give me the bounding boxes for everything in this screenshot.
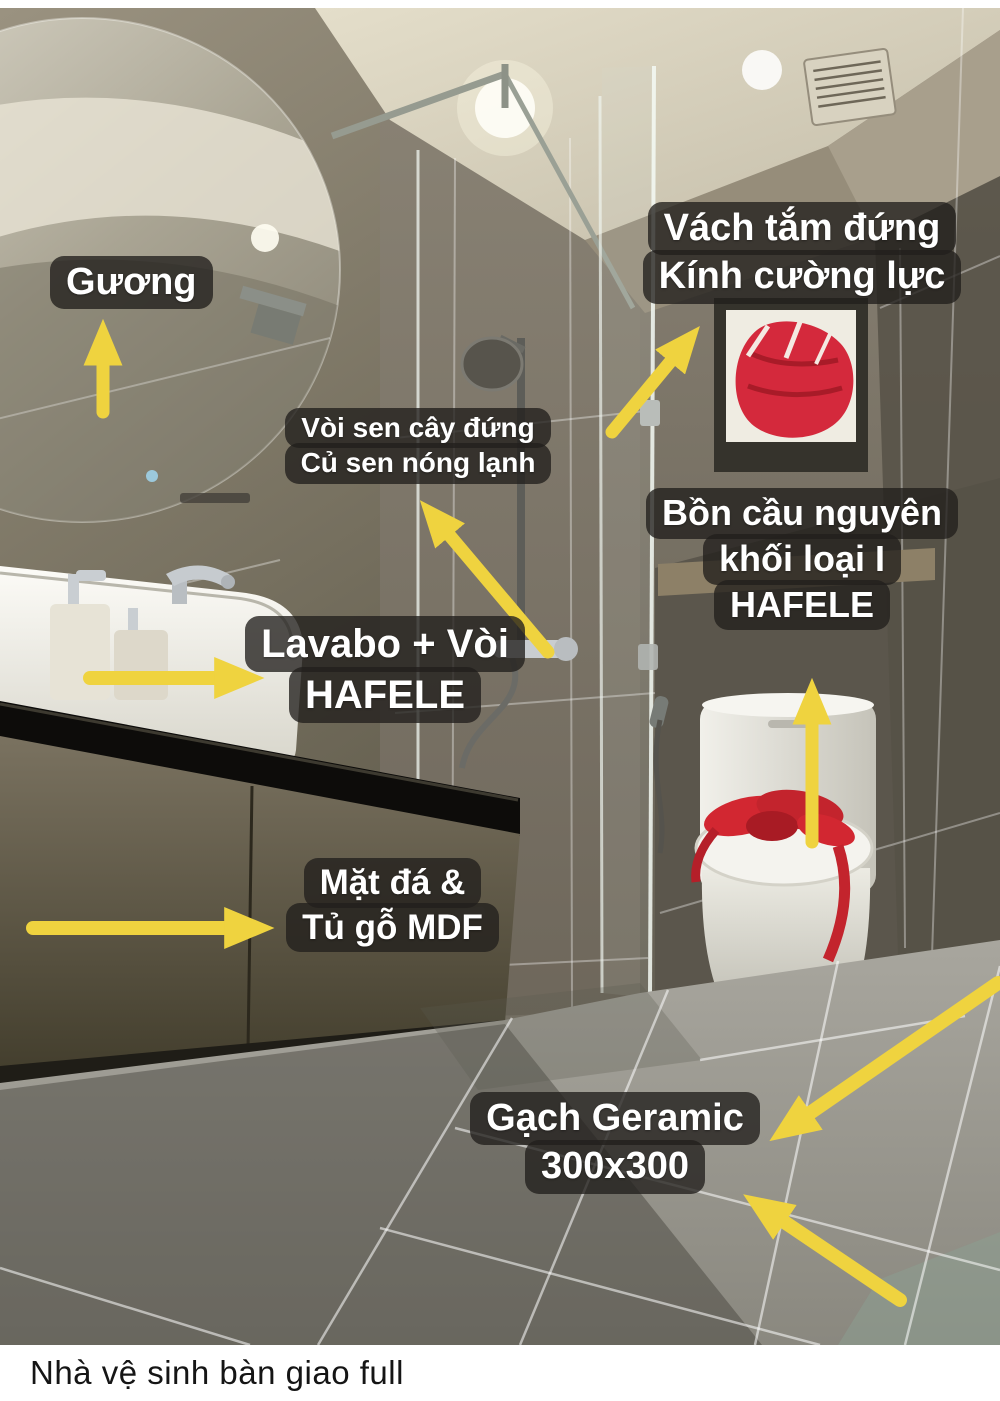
caption-text: Nhà vệ sinh bàn giao full bbox=[30, 1354, 404, 1392]
label-shower-glass: Vách tắm đứng Kính cường lực bbox=[652, 202, 952, 304]
label-shower-set: Vòi sen cây đứng Củ sen nóng lạnh bbox=[292, 408, 544, 484]
label-toilet-line-2: khối loại I bbox=[703, 534, 901, 585]
label-vanity-line-1: Mặt đá & bbox=[304, 858, 482, 908]
label-floor-tile: Gạch Geramic 300x300 bbox=[475, 1092, 755, 1194]
label-toilet-line-3: HAFELE bbox=[714, 580, 890, 631]
label-vanity: Mặt đá & Tủ gỗ MDF bbox=[285, 858, 500, 952]
mixer-handle bbox=[554, 637, 578, 661]
label-toilet: Bồn cầu nguyên khối loại I HAFELE bbox=[652, 488, 952, 630]
mirror-touch-led bbox=[146, 470, 158, 482]
label-shower-glass-line-1: Vách tắm đứng bbox=[648, 202, 957, 255]
label-shower-set-line-2: Củ sen nóng lạnh bbox=[285, 443, 552, 483]
label-sink: Lavabo + Vòi HAFELE bbox=[255, 616, 515, 723]
glass-hinge bbox=[640, 400, 660, 426]
label-floor-tile-line-2: 300x300 bbox=[525, 1140, 705, 1193]
label-floor-tile-line-1: Gạch Geramic bbox=[470, 1092, 760, 1145]
label-mirror-line-1: Gương bbox=[50, 256, 213, 309]
label-shower-glass-line-2: Kính cường lực bbox=[643, 250, 962, 303]
caption-bar: Nhà vệ sinh bàn giao full bbox=[0, 1345, 1000, 1401]
downlight-2 bbox=[742, 50, 782, 90]
label-vanity-line-2: Tủ gỗ MDF bbox=[286, 903, 499, 953]
shower-head bbox=[462, 338, 522, 390]
flush-button bbox=[768, 720, 812, 728]
exhaust-vent bbox=[804, 48, 896, 125]
label-sink-line-2: HAFELE bbox=[289, 667, 481, 723]
label-mirror: Gương bbox=[50, 256, 213, 309]
label-toilet-line-1: Bồn cầu nguyên bbox=[646, 488, 958, 539]
label-sink-line-1: Lavabo + Vòi bbox=[245, 616, 525, 672]
mirror-logo-strip bbox=[180, 493, 250, 503]
label-shower-set-line-1: Vòi sen cây đứng bbox=[285, 408, 550, 448]
wall-artwork bbox=[714, 298, 868, 472]
glass-hinge-2 bbox=[638, 644, 658, 670]
